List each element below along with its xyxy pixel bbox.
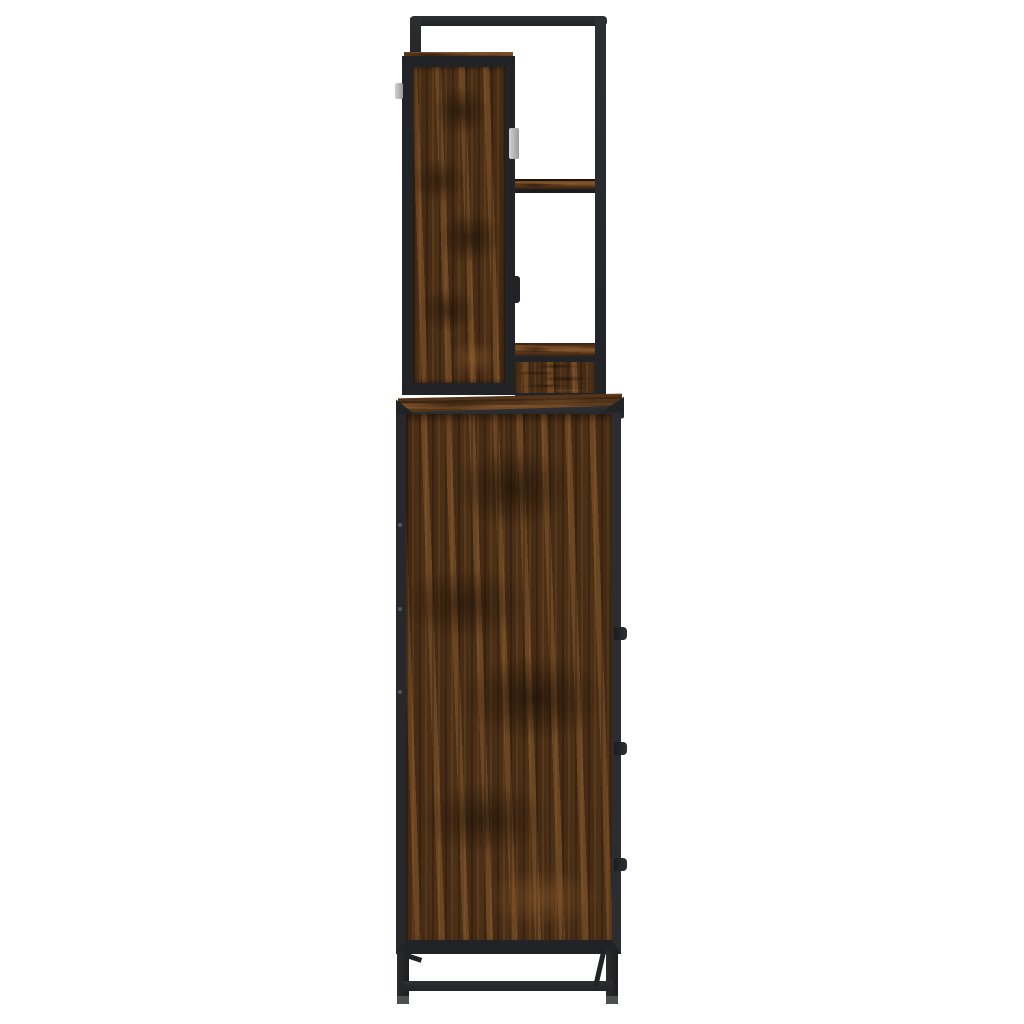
leg-foot [606, 996, 618, 1004]
product-photo [0, 0, 1024, 1024]
shelf-lower-wood-back [515, 362, 595, 393]
shelf-unit-knob [511, 276, 520, 303]
leg-right [606, 950, 618, 1004]
leg-foot [397, 996, 409, 1004]
cabinet-side-panel [396, 414, 621, 954]
drawer-knob-middle [614, 742, 627, 755]
bolt-icon [398, 523, 402, 527]
drawer-knob-top [614, 627, 627, 640]
hinge-tab-left [395, 83, 403, 99]
open-shelf-lower [515, 343, 595, 402]
shelf-board [515, 343, 595, 356]
bolt-icon [398, 690, 402, 694]
drawer-knob-bottom [614, 858, 627, 871]
hinge-tab-right [509, 128, 519, 159]
base-crossbar [403, 981, 613, 991]
shelf-frame-top-bar [410, 16, 607, 26]
bolt-icon [398, 607, 402, 611]
shelf-frame-right-bar [595, 18, 606, 406]
open-shelf-upper [515, 179, 595, 193]
leg-left [397, 952, 409, 1004]
shelf-unit-side-panel [402, 56, 515, 395]
